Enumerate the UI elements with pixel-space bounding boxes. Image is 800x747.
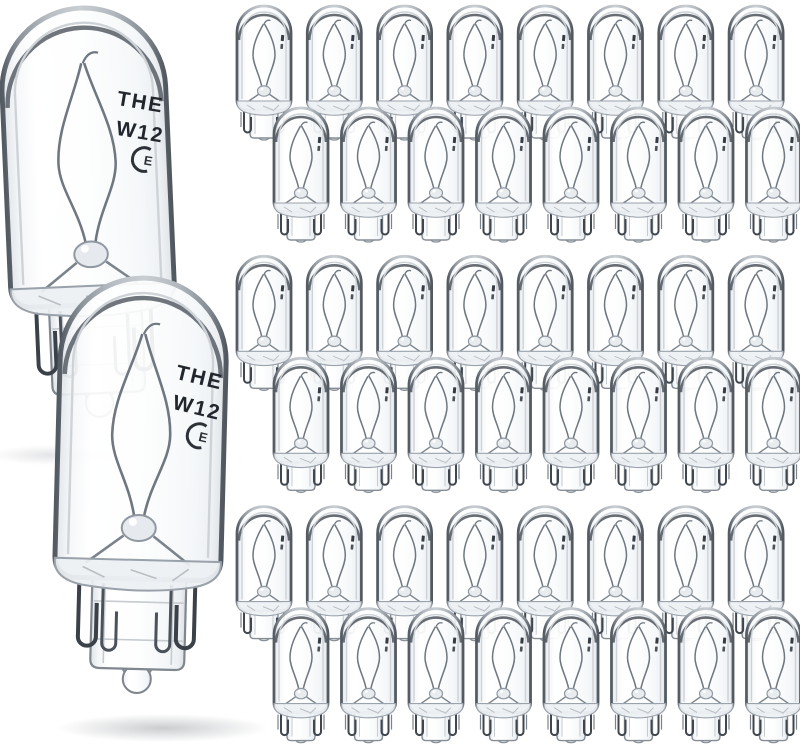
small-bulb [611,358,665,492]
small-bulb [409,358,463,492]
large-bulb-2 [51,276,233,695]
small-bulb [679,358,733,492]
small-bulb [409,108,463,242]
small-bulb [274,358,328,492]
small-bulb [274,108,328,242]
small-bulb [341,609,395,743]
small-bulb [746,108,800,242]
small-bulb [611,609,665,743]
small-bulb [476,609,530,743]
small-bulb-grid [237,6,800,743]
small-bulb [746,609,800,743]
large-bulb-layer [0,4,233,695]
small-bulb [746,358,800,492]
small-bulb [679,108,733,242]
small-bulb [611,108,665,242]
small-bulb [476,108,530,242]
small-bulb [341,358,395,492]
small-bulb [544,609,598,743]
small-bulb [341,108,395,242]
small-bulb [544,358,598,492]
bulb-photo-canvas: THE W12 E [0,0,800,747]
small-bulb [274,609,328,743]
small-bulb [679,609,733,743]
bulb-shadow [57,714,269,742]
small-bulb [544,108,598,242]
product-photo: THE W12 E [0,0,800,747]
small-bulb [476,358,530,492]
small-bulb [409,609,463,743]
